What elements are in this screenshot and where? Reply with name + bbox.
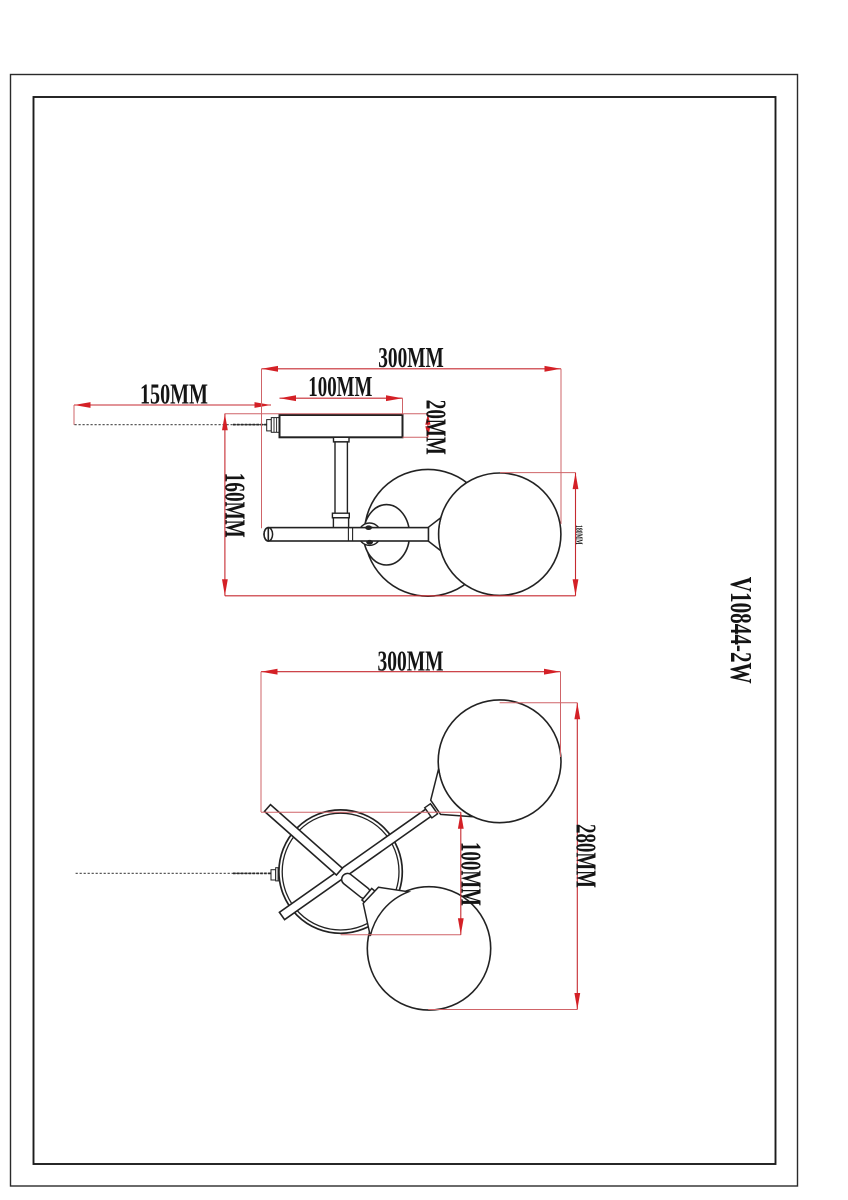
svg-text:100MM: 100MM bbox=[308, 372, 372, 403]
svg-text:300MM: 300MM bbox=[378, 343, 444, 374]
svg-text:100MM: 100MM bbox=[455, 842, 486, 906]
svg-text:20MM: 20MM bbox=[420, 400, 451, 455]
svg-text:280MM: 280MM bbox=[570, 824, 601, 888]
svg-text:300MM: 300MM bbox=[378, 646, 444, 677]
svg-text:180MM: 180MM bbox=[574, 525, 584, 545]
svg-text:160MM: 160MM bbox=[218, 473, 249, 538]
svg-text:V10844-2W: V10844-2W bbox=[724, 577, 759, 684]
svg-text:150MM: 150MM bbox=[140, 379, 208, 410]
